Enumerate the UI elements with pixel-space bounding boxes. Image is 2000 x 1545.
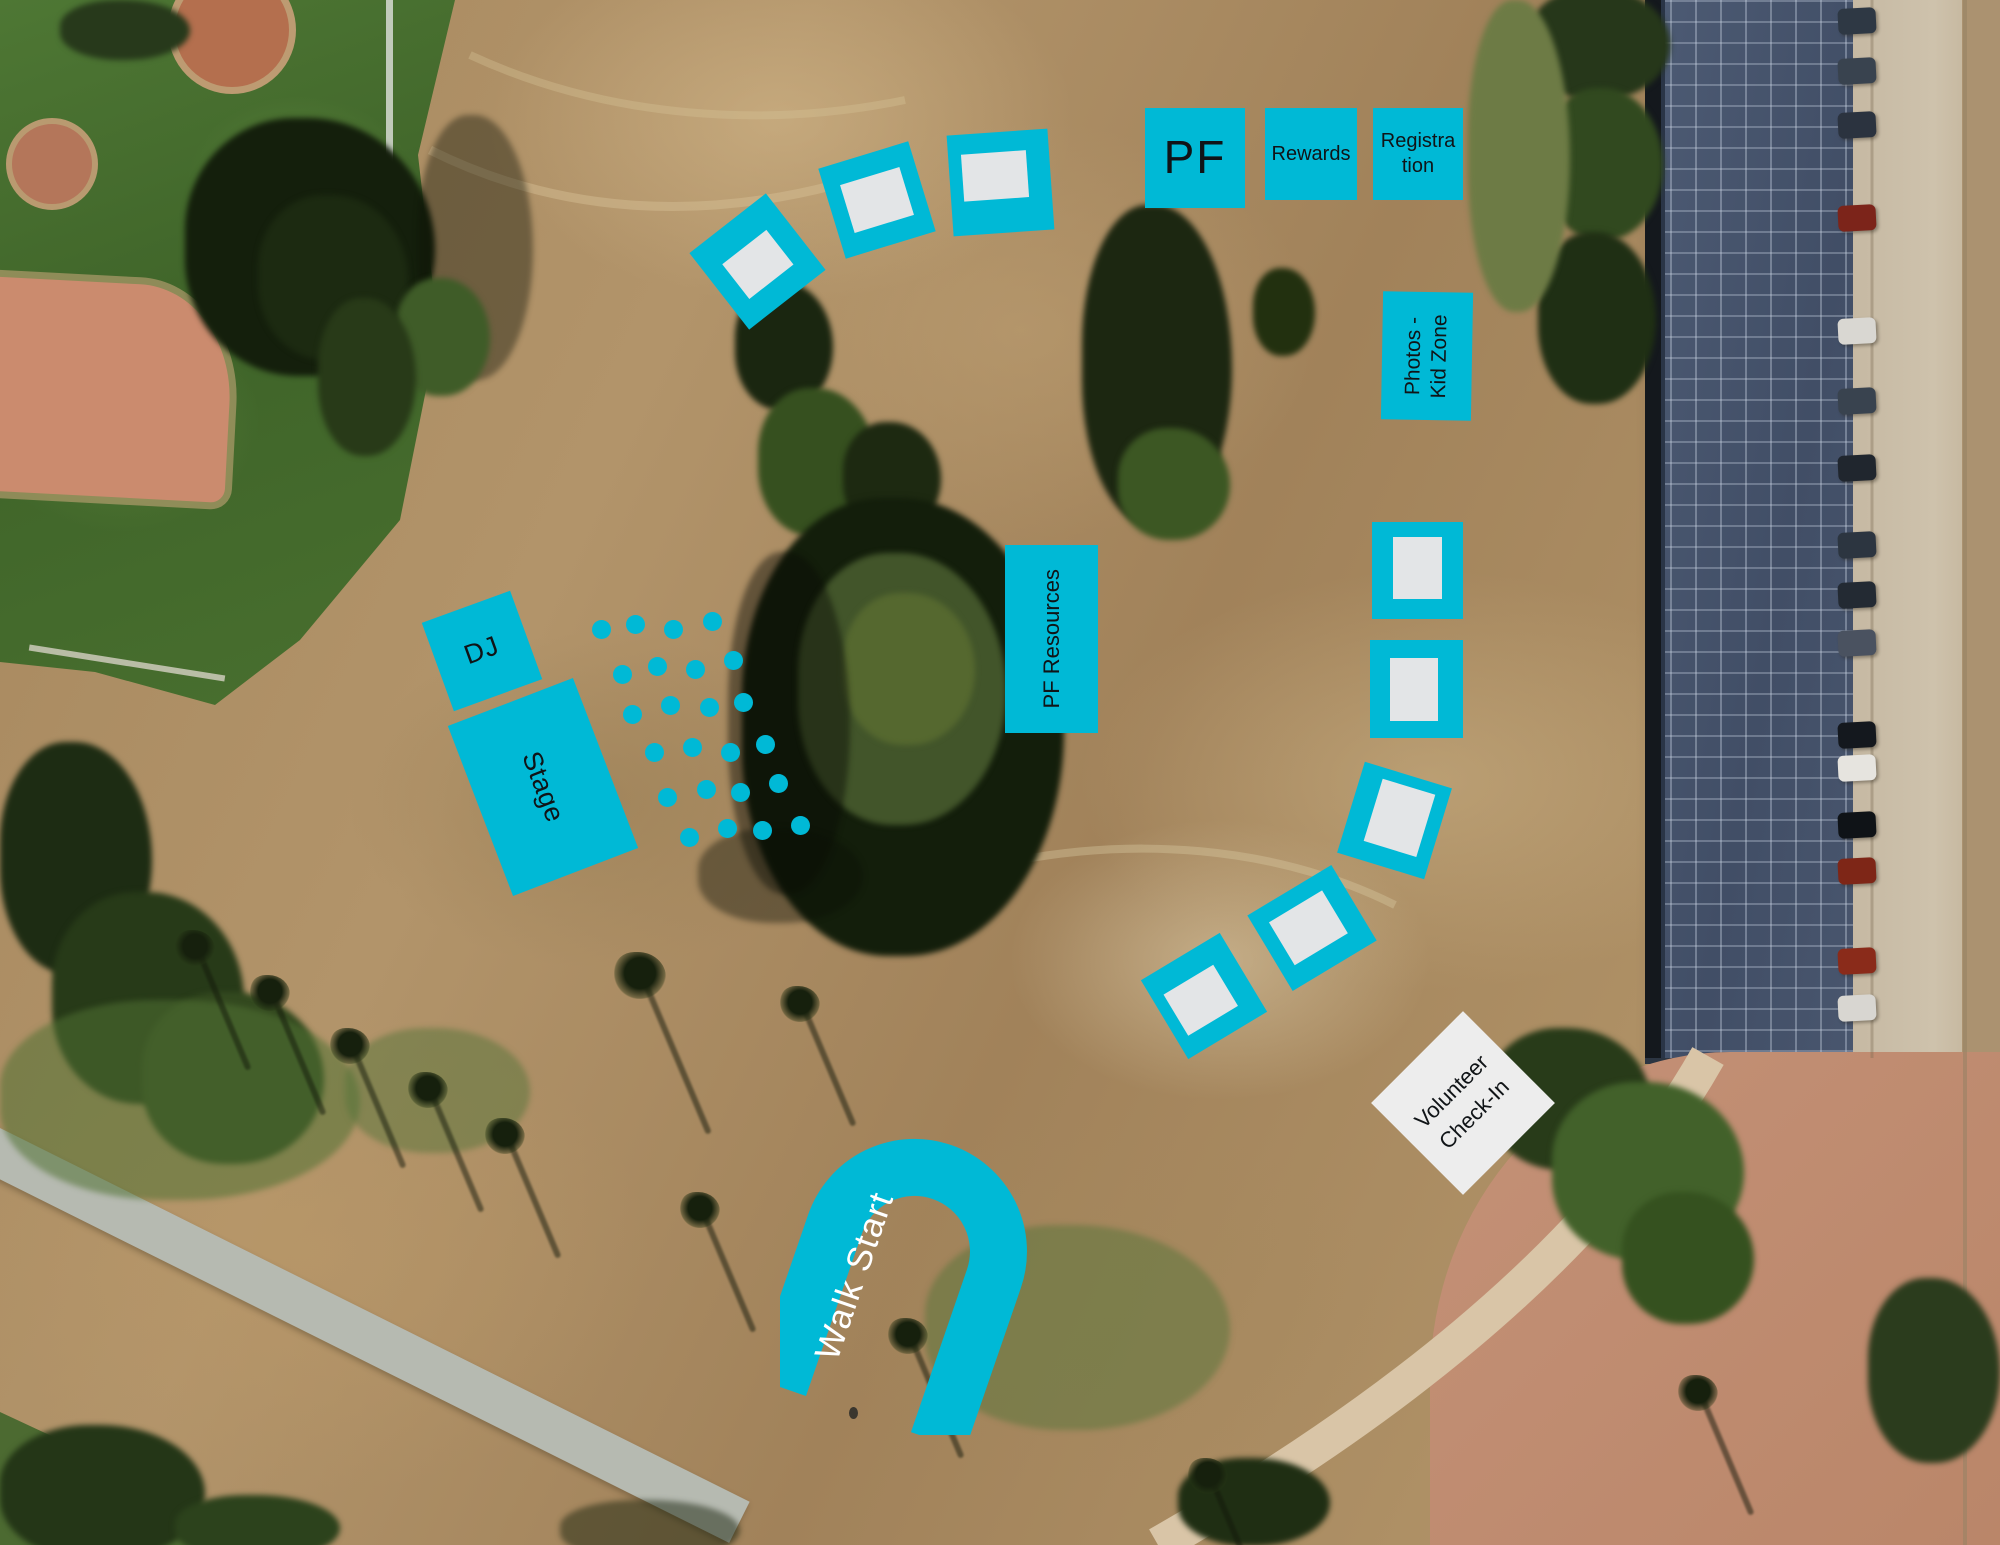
dot-marker bbox=[592, 620, 611, 639]
booth-marker[interactable] bbox=[818, 141, 935, 258]
zone-photos-kid-zone[interactable]: Photos - Kid Zone bbox=[1381, 291, 1473, 421]
booth-marker[interactable] bbox=[946, 128, 1054, 236]
zone-photos-label: Photos - bbox=[1400, 314, 1428, 399]
dot-marker bbox=[697, 780, 716, 799]
dot-marker bbox=[724, 651, 743, 670]
dot-marker bbox=[756, 735, 775, 754]
zone-registration-label: Registra bbox=[1381, 129, 1455, 154]
event-site-map: PF Rewards Registra tion Photos - Kid Zo… bbox=[0, 0, 2000, 1545]
zone-registration[interactable]: Registra tion bbox=[1373, 108, 1463, 200]
zone-stage-label: Stage bbox=[514, 747, 572, 827]
booth-table bbox=[1390, 658, 1438, 721]
dot-marker bbox=[658, 788, 677, 807]
dot-marker bbox=[703, 612, 722, 631]
dot-marker bbox=[700, 698, 719, 717]
dot-marker bbox=[626, 615, 645, 634]
dot-marker bbox=[734, 693, 753, 712]
booth-marker[interactable] bbox=[1372, 522, 1463, 619]
dot-marker bbox=[683, 738, 702, 757]
zone-registration-label: tion bbox=[1402, 154, 1434, 179]
booth-table bbox=[840, 167, 914, 233]
dot-marker bbox=[648, 657, 667, 676]
booth-marker[interactable] bbox=[689, 193, 825, 329]
booth-table bbox=[1363, 778, 1435, 856]
booth-table bbox=[1164, 965, 1238, 1036]
dot-marker bbox=[718, 819, 737, 838]
zone-rewards-label: Rewards bbox=[1272, 142, 1351, 167]
dot-marker bbox=[661, 696, 680, 715]
zone-pf-resources-label: PF Resources bbox=[1038, 569, 1066, 708]
dot-marker bbox=[680, 828, 699, 847]
zone-volunteer-check-in[interactable]: Volunteer Check-In bbox=[1371, 1011, 1555, 1195]
zone-pf-resources[interactable]: PF Resources bbox=[1005, 545, 1098, 733]
booth-marker[interactable] bbox=[1370, 640, 1463, 738]
dot-marker bbox=[686, 660, 705, 679]
booth-table bbox=[1269, 890, 1348, 965]
booth-table bbox=[1393, 537, 1442, 599]
zone-dj-label: DJ bbox=[460, 629, 504, 673]
booth-marker[interactable] bbox=[1141, 933, 1267, 1059]
zone-stage[interactable]: Stage bbox=[448, 678, 638, 896]
zone-rewards[interactable]: Rewards bbox=[1265, 108, 1357, 200]
booth-table bbox=[721, 229, 792, 298]
booth-marker[interactable] bbox=[1337, 761, 1452, 878]
event-overlay: PF Rewards Registra tion Photos - Kid Zo… bbox=[0, 0, 2000, 1545]
booth-marker[interactable] bbox=[1247, 865, 1376, 991]
zone-pf-label: PF bbox=[1164, 129, 1227, 187]
dot-marker bbox=[731, 783, 750, 802]
zone-photos-label: Kid Zone bbox=[1426, 314, 1454, 399]
booth-table bbox=[960, 150, 1028, 201]
dot-marker bbox=[769, 774, 788, 793]
dot-marker bbox=[721, 743, 740, 762]
dot-marker bbox=[664, 620, 683, 639]
dot-marker bbox=[753, 821, 772, 840]
dot-marker bbox=[645, 743, 664, 762]
dot-marker bbox=[613, 665, 632, 684]
dot-marker bbox=[791, 816, 810, 835]
zone-pf[interactable]: PF bbox=[1145, 108, 1245, 208]
dot-marker bbox=[623, 705, 642, 724]
zone-dj[interactable]: DJ bbox=[422, 591, 542, 711]
